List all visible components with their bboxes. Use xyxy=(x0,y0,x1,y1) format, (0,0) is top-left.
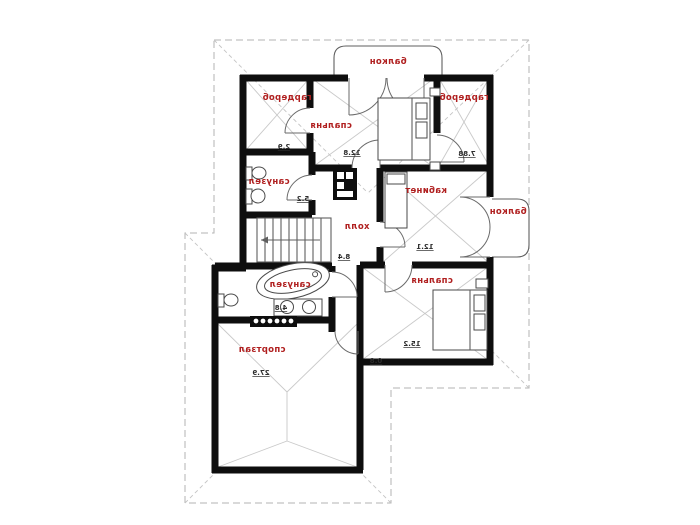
vent-shaft xyxy=(333,168,357,200)
area-bathroom-top: 5.2 xyxy=(297,195,310,203)
sink-top-icon xyxy=(246,189,265,204)
label-bathroom-low: санузел xyxy=(269,280,310,290)
label-bathroom-top: санузел xyxy=(248,177,289,187)
radiator-icon xyxy=(250,316,297,327)
roof-ridge-lines xyxy=(218,80,488,467)
label-balcony-top: балкон xyxy=(369,56,406,67)
toilet-low-icon xyxy=(218,294,238,307)
small-dim-label: 0.8 xyxy=(370,357,383,365)
area-gym: 27.9 xyxy=(252,369,269,377)
area-study: 12.1 xyxy=(416,243,433,251)
walls xyxy=(212,75,493,473)
area-wardrobe-left: 2.9 xyxy=(278,143,291,151)
label-study: кабинет xyxy=(405,185,447,196)
label-bedroom-low: спальня xyxy=(411,276,453,286)
daybed-study-icon xyxy=(385,172,407,228)
area-hall: 8.4 xyxy=(338,253,351,261)
label-wardrobe-right: гардероб xyxy=(439,92,488,103)
label-bedroom-top: спальня xyxy=(310,121,352,131)
floor-plan-drawing: балкон гардероб спальня гардероб санузел… xyxy=(0,0,700,525)
stairs-icon xyxy=(257,218,331,262)
area-bathroom-low: 4.8 xyxy=(275,304,288,312)
area-bedroom-top: 12.8 xyxy=(343,149,360,157)
label-wardrobe-left: гардероб xyxy=(262,92,311,103)
area-wardrobe-right: 7.88 xyxy=(458,150,475,158)
label-balcony-right: балкон xyxy=(489,206,526,217)
bed-low-icon xyxy=(433,279,488,350)
label-gym: спортзал xyxy=(238,345,285,355)
bed-top-icon xyxy=(378,88,440,170)
label-hall: холл xyxy=(345,222,370,232)
floor-plan-canvas: балкон гардероб спальня гардероб санузел… xyxy=(0,0,700,525)
area-bedroom-low: 15.2 xyxy=(403,340,420,348)
